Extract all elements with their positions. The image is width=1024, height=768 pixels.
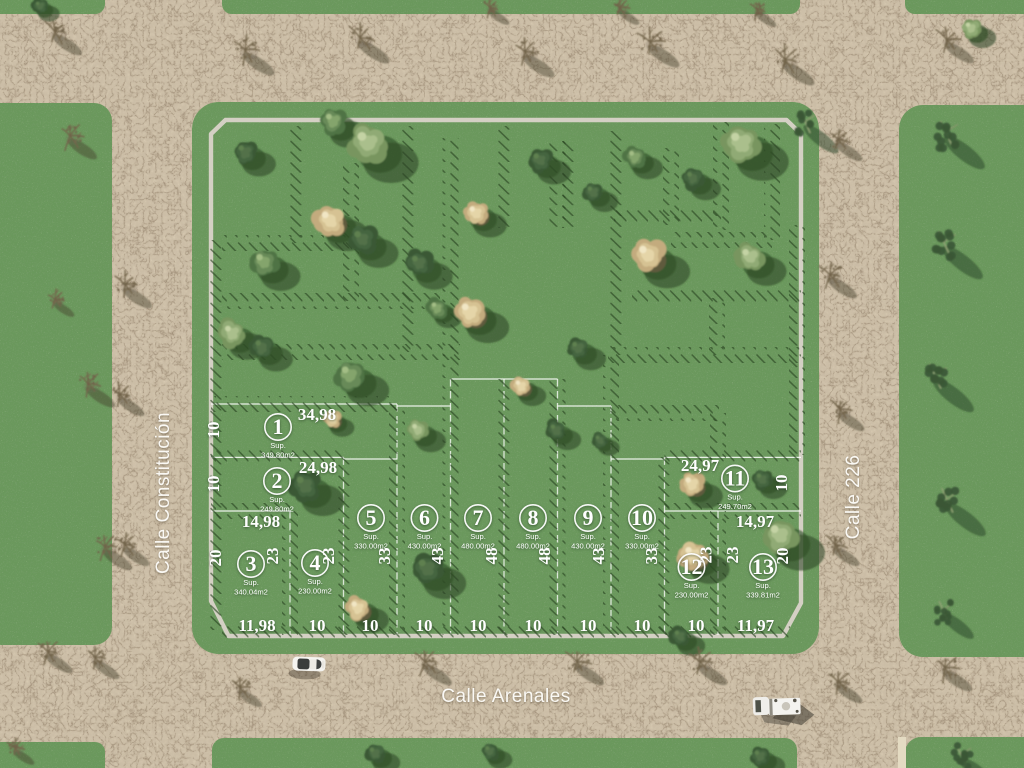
svg-text:Sup.: Sup. — [270, 441, 286, 450]
svg-text:24,98: 24,98 — [299, 458, 337, 477]
svg-text:10: 10 — [525, 616, 542, 635]
svg-text:12: 12 — [681, 554, 703, 579]
svg-text:10: 10 — [416, 616, 433, 635]
svg-text:11,97: 11,97 — [737, 616, 775, 635]
svg-text:10: 10 — [204, 422, 223, 439]
svg-text:20: 20 — [206, 550, 225, 567]
svg-text:10: 10 — [204, 476, 223, 493]
svg-text:7: 7 — [473, 505, 484, 530]
svg-text:10: 10 — [688, 616, 705, 635]
svg-text:23: 23 — [263, 548, 282, 565]
svg-text:10: 10 — [580, 616, 597, 635]
svg-text:6: 6 — [419, 505, 430, 530]
svg-text:Sup.: Sup. — [580, 532, 596, 541]
svg-text:Sup.: Sup. — [727, 493, 743, 502]
svg-text:Sup.: Sup. — [243, 578, 259, 587]
svg-text:430.00m2: 430.00m2 — [408, 542, 442, 551]
svg-text:480.00m2: 480.00m2 — [461, 542, 495, 551]
svg-text:10: 10 — [631, 505, 653, 530]
svg-text:34,98: 34,98 — [298, 405, 336, 424]
svg-text:14,97: 14,97 — [736, 512, 775, 531]
svg-text:Calle 226: Calle 226 — [843, 455, 864, 540]
svg-text:230.00m2: 230.00m2 — [298, 587, 332, 596]
svg-text:Sup.: Sup. — [307, 577, 323, 586]
svg-text:10: 10 — [470, 616, 487, 635]
svg-text:10: 10 — [634, 616, 651, 635]
svg-text:249.80m2: 249.80m2 — [260, 505, 294, 514]
svg-text:4: 4 — [310, 550, 321, 575]
svg-text:10: 10 — [309, 616, 326, 635]
svg-text:24,97: 24,97 — [681, 456, 720, 475]
svg-text:Sup.: Sup. — [755, 581, 771, 590]
svg-text:Sup.: Sup. — [525, 532, 541, 541]
svg-text:9: 9 — [583, 505, 594, 530]
svg-text:349.80m2: 349.80m2 — [261, 451, 295, 460]
svg-text:Sup.: Sup. — [363, 532, 379, 541]
svg-text:480.00m2: 480.00m2 — [516, 542, 550, 551]
svg-text:249.70m2: 249.70m2 — [718, 502, 752, 511]
svg-text:430.00m2: 430.00m2 — [571, 542, 605, 551]
svg-text:2: 2 — [272, 468, 283, 493]
svg-text:13: 13 — [752, 554, 774, 579]
svg-text:Sup.: Sup. — [269, 495, 285, 504]
svg-text:10: 10 — [362, 616, 379, 635]
svg-text:Sup.: Sup. — [684, 581, 700, 590]
svg-text:8: 8 — [528, 505, 539, 530]
svg-text:11: 11 — [725, 466, 746, 491]
svg-text:14,98: 14,98 — [242, 512, 280, 531]
svg-text:10: 10 — [772, 475, 791, 492]
svg-text:Calle Arenales: Calle Arenales — [441, 686, 571, 707]
svg-text:23: 23 — [723, 547, 742, 564]
svg-text:1: 1 — [273, 414, 284, 439]
svg-text:11,98: 11,98 — [238, 616, 275, 635]
svg-text:330.00m2: 330.00m2 — [354, 542, 388, 551]
svg-text:230.00m2: 230.00m2 — [675, 591, 709, 600]
svg-text:Sup.: Sup. — [470, 532, 486, 541]
svg-text:Calle Constitución: Calle Constitución — [153, 412, 174, 574]
svg-text:Sup.: Sup. — [634, 532, 650, 541]
svg-text:Sup.: Sup. — [417, 532, 433, 541]
svg-text:330.00m2: 330.00m2 — [625, 542, 659, 551]
svg-text:339.81m2: 339.81m2 — [746, 591, 780, 600]
svg-text:340.04m2: 340.04m2 — [234, 588, 268, 597]
svg-text:3: 3 — [246, 551, 257, 576]
svg-text:5: 5 — [366, 505, 377, 530]
